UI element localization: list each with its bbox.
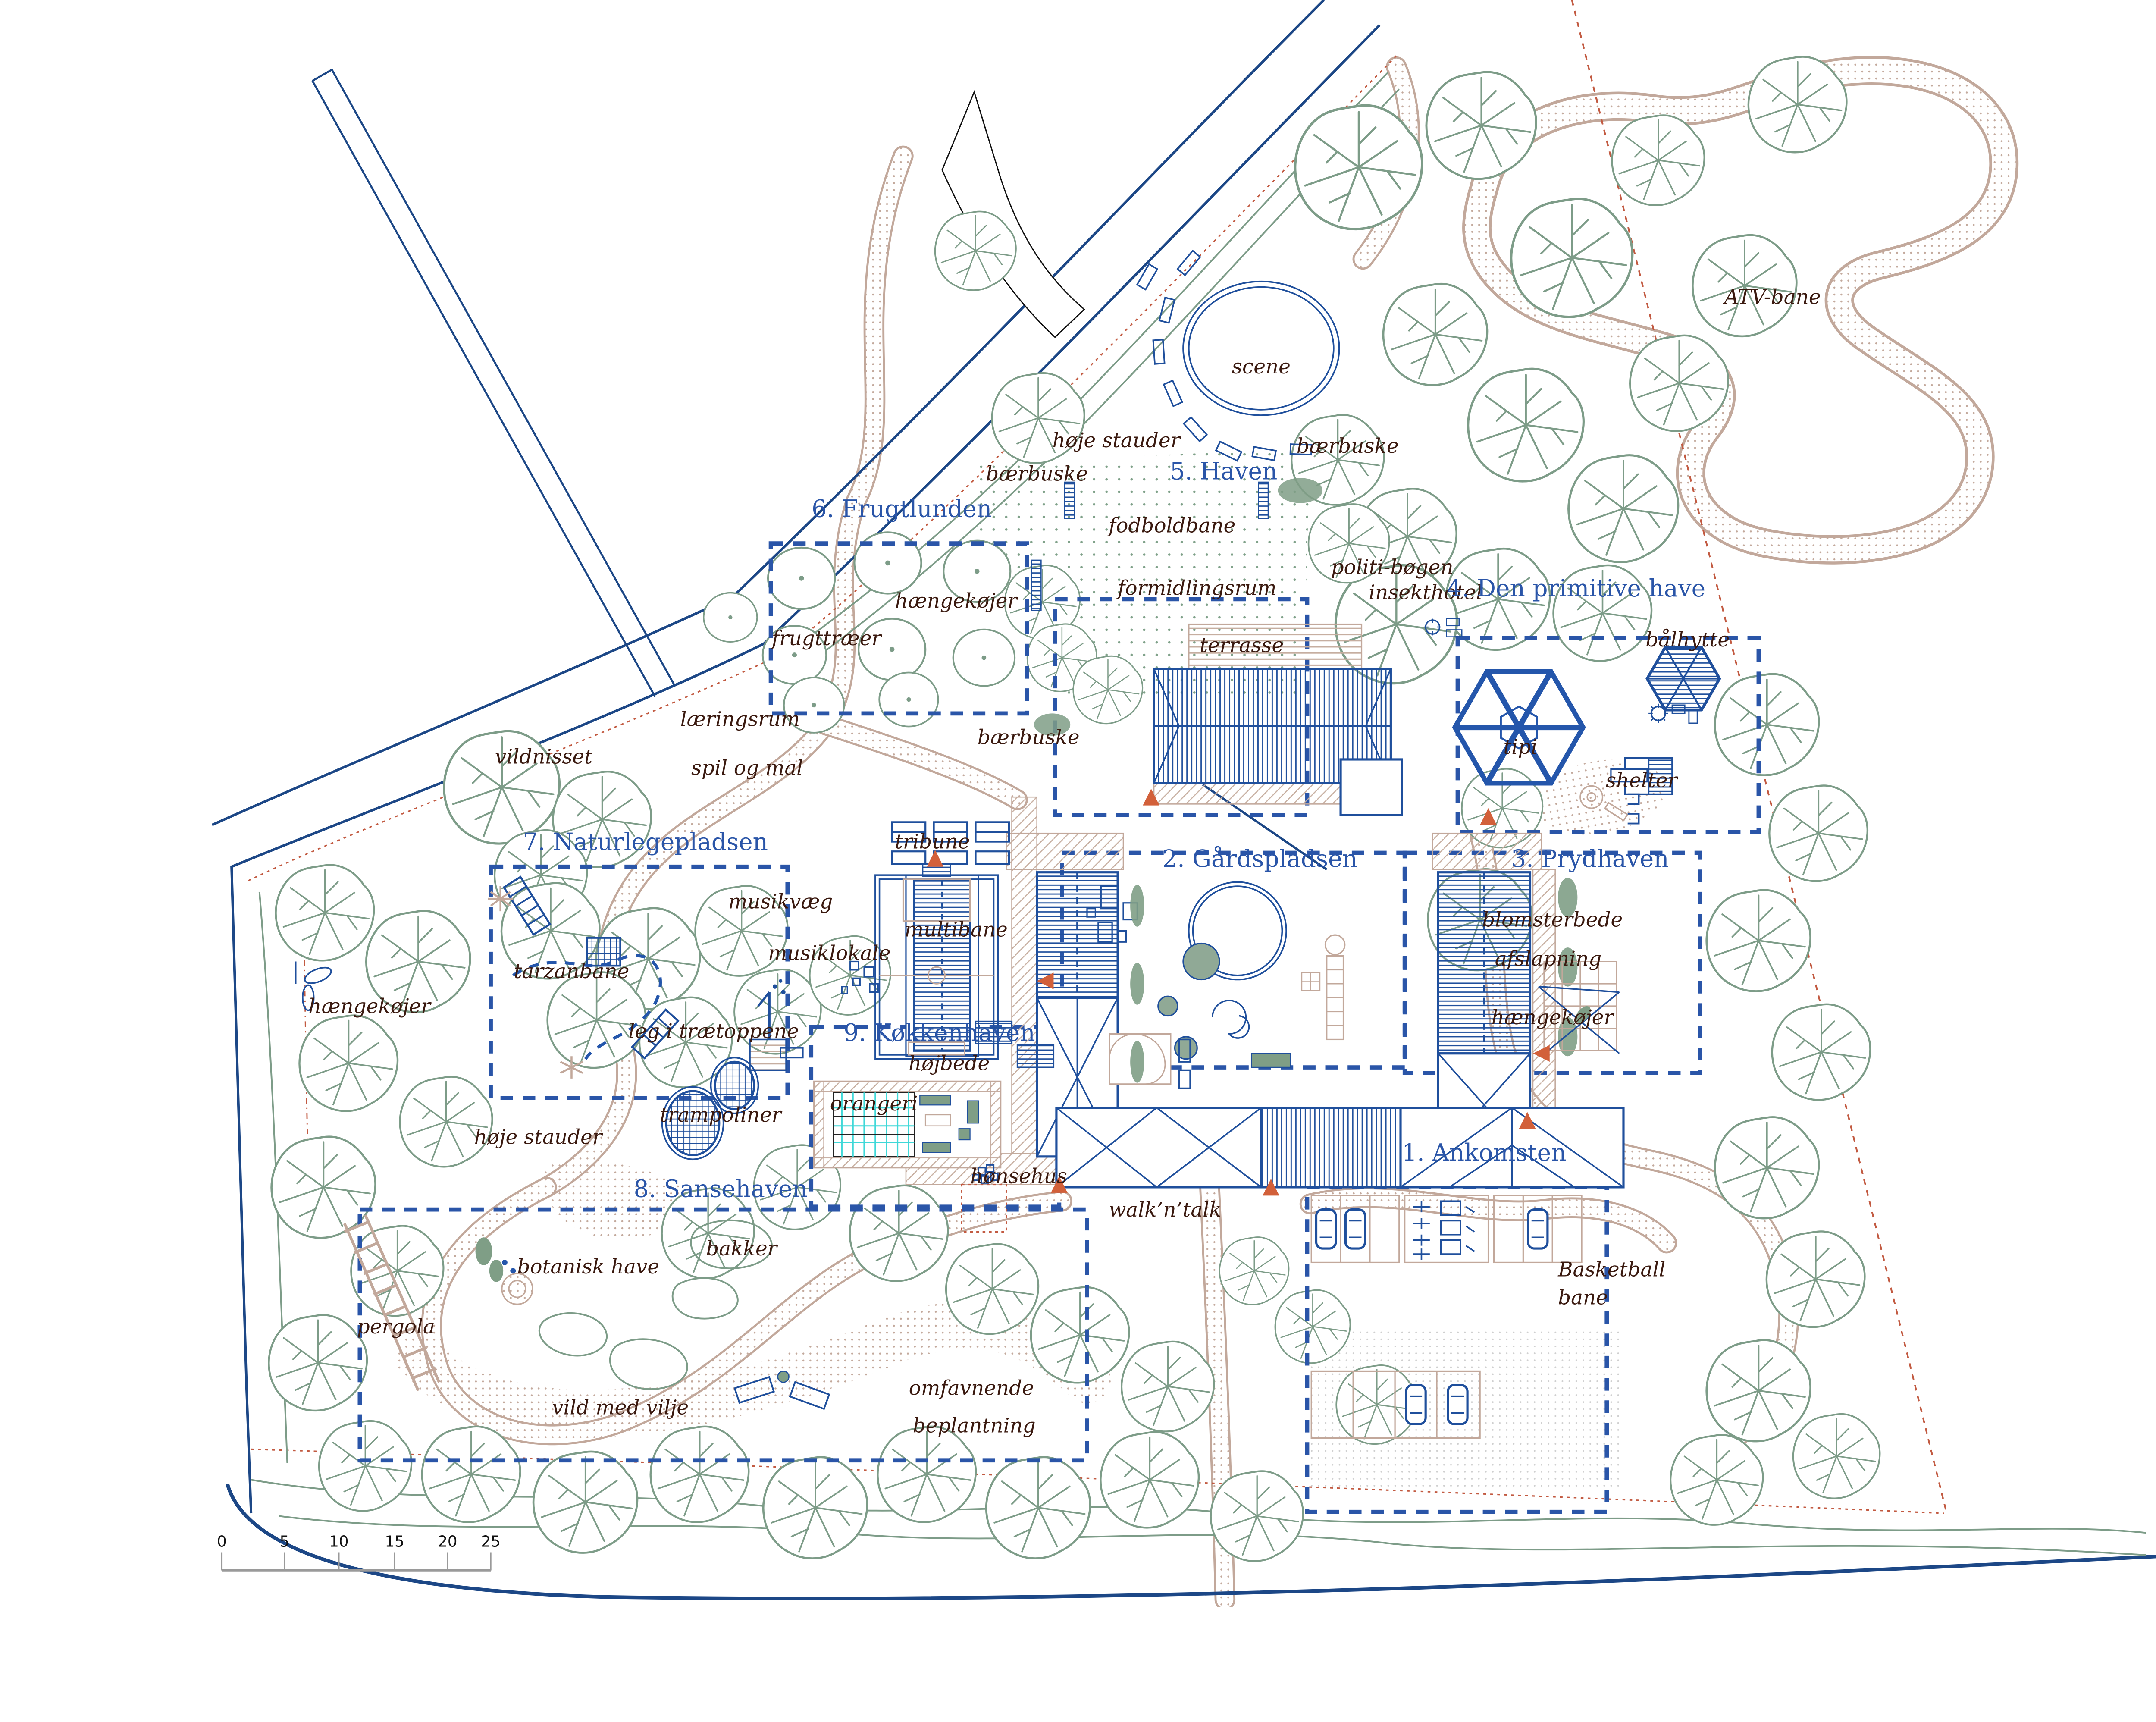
label-formidlingsrum: formidlingsrum	[1116, 577, 1276, 600]
area-label-6: 6. Frugtlunden	[812, 495, 992, 523]
label-multibane: multibane	[905, 918, 1008, 941]
label-musikvaeg: musikvæg	[728, 891, 833, 914]
area-label-9: 9. Køkkenhaven	[843, 1019, 1035, 1047]
label-tarzanbane: tarzanbane	[514, 960, 630, 983]
label-omfavnende-1: omfavnende	[909, 1377, 1034, 1400]
label-trampoliner: trampoliner	[660, 1104, 783, 1127]
scale-bar: 0 5 10 15 20 25	[217, 1533, 501, 1571]
label-afslapning: afslapning	[1495, 947, 1602, 971]
berry-bushes	[1278, 478, 1322, 503]
spiral-play-element	[1213, 1001, 1249, 1038]
label-basketball-1: Basketball	[1557, 1258, 1665, 1282]
label-fodboldbane: fodboldbane	[1107, 514, 1236, 537]
scale-tick-25: 25	[481, 1533, 500, 1551]
label-walk-n-talk: walk’n’talk	[1109, 1198, 1221, 1222]
area-label-7: 7. Naturlegepladsen	[523, 828, 768, 856]
label-atv-bane: ATV-bane	[1723, 285, 1821, 309]
label-haengekojer-frugtlund: hængekøjer	[895, 590, 1018, 613]
site-plan-canvas: 0 5 10 15 20 25 ATV-bane scene høje stau…	[0, 0, 2156, 1607]
label-tribune: tribune	[895, 831, 970, 854]
label-politi-bogen: politi-bøgen	[1331, 556, 1454, 579]
label-shelter: shelter	[1606, 769, 1678, 793]
scale-tick-20: 20	[438, 1533, 457, 1551]
label-botanisk-have: botanisk have	[517, 1255, 659, 1279]
label-baerbuske-low: bærbuske	[978, 726, 1080, 749]
fire-hut	[1647, 647, 1720, 710]
label-terrasse: terrasse	[1200, 634, 1284, 657]
planter-bench	[1251, 1054, 1290, 1067]
trampoline	[715, 1062, 754, 1109]
label-pergola: pergola	[357, 1315, 435, 1339]
narrow-road	[312, 70, 674, 697]
label-spil-og-mal: spil og mal	[691, 757, 803, 780]
area-label-4: 4. Den primitive have	[1447, 574, 1705, 602]
area-label-5: 5. Haven	[1170, 458, 1277, 485]
label-honsehus: hønsehus	[970, 1165, 1067, 1188]
label-laeringsrum: læringsrum	[680, 708, 800, 731]
label-hoje-stauder-top: høje stauder	[1053, 429, 1181, 452]
label-bakker: bakker	[706, 1237, 778, 1261]
scale-tick-15: 15	[385, 1533, 404, 1551]
site-plan: 0 5 10 15 20 25 ATV-bane scene høje stau…	[0, 0, 2156, 1607]
tipi	[1455, 671, 1583, 783]
scale-tick-5: 5	[280, 1533, 290, 1551]
mound	[673, 1278, 738, 1319]
label-vild-med-vilje: vild med vilje	[552, 1396, 689, 1420]
label-frugttraeer: frugttræer	[771, 627, 883, 650]
label-leg-i-traetoppene: leg i trætoppene	[628, 1020, 799, 1043]
label-baalhytte: bålhytte	[1645, 628, 1730, 652]
label-blomsterbede: blomsterbede	[1482, 909, 1623, 932]
label-omfavnende-2: beplantning	[913, 1415, 1036, 1438]
label-basketball-2: bane	[1558, 1286, 1608, 1309]
label-hoje-stauder-left: høje stauder	[474, 1126, 603, 1149]
label-baerbuske-topright: bærbuske	[1297, 435, 1399, 458]
label-scene: scene	[1232, 355, 1291, 379]
area-label-3: 3. Prydhaven	[1511, 845, 1669, 872]
label-musiklokale: musiklokale	[768, 942, 890, 965]
label-vildnisset: vildnisset	[495, 746, 592, 769]
area-label-2: 2. Gårdspladsen	[1162, 845, 1357, 872]
area-label-1: 1. Ankomsten	[1402, 1139, 1566, 1167]
label-baerbuske-left: bærbuske	[986, 463, 1088, 486]
scale-tick-0: 0	[217, 1533, 227, 1551]
label-orangeri: orangeri	[830, 1092, 918, 1116]
area-label-8: 8. Sansehaven	[634, 1175, 808, 1203]
scale-tick-10: 10	[329, 1533, 348, 1551]
label-tipi: tipi	[1503, 736, 1537, 759]
label-haengekojer-left: hængekøjer	[308, 995, 432, 1018]
label-haengekojer-pryd: hængekøjer	[1492, 1006, 1615, 1029]
label-hojbede: højbede	[909, 1052, 990, 1076]
